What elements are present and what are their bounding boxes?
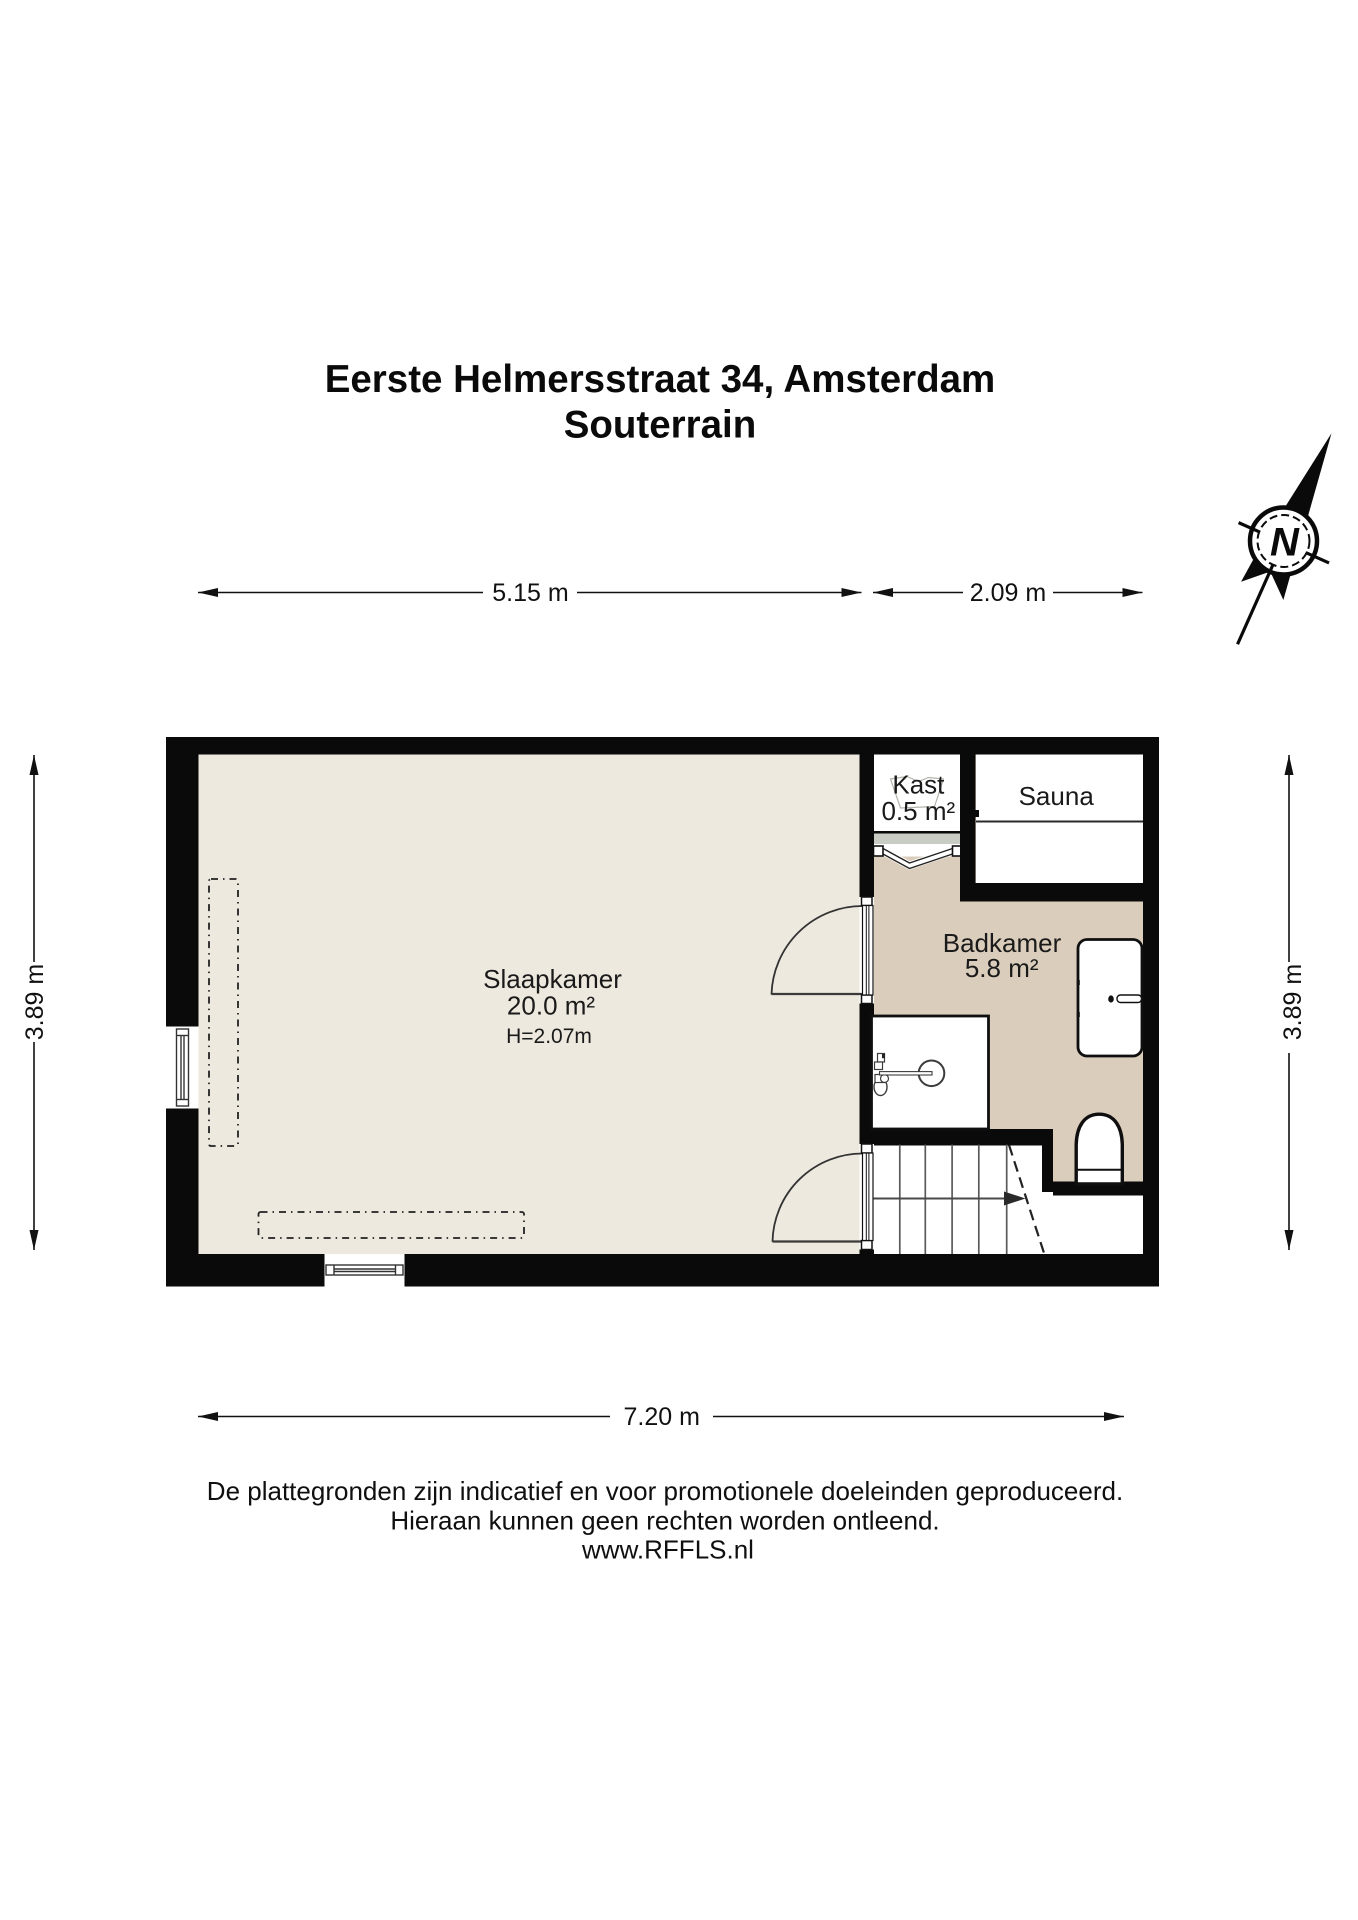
svg-text:5.8 m²: 5.8 m²: [965, 953, 1039, 983]
svg-text:H=2.07m: H=2.07m: [506, 1025, 592, 1048]
svg-text:7.20 m: 7.20 m: [623, 1403, 699, 1431]
svg-text:De plattegronden zijn indicati: De plattegronden zijn indicatief en voor…: [207, 1476, 1123, 1506]
svg-text:Souterrain: Souterrain: [564, 404, 757, 447]
svg-text:N: N: [1270, 521, 1300, 565]
svg-text:3.89 m: 3.89 m: [21, 964, 49, 1040]
svg-text:Sauna: Sauna: [1019, 781, 1095, 811]
svg-text:www.RFFLS.nl: www.RFFLS.nl: [581, 1534, 754, 1564]
svg-text:Eerste Helmersstraat 34, Amste: Eerste Helmersstraat 34, Amsterdam: [325, 358, 996, 401]
svg-text:0.5 m²: 0.5 m²: [881, 796, 955, 826]
svg-text:Hieraan kunnen geen rechten wo: Hieraan kunnen geen rechten worden ontle…: [390, 1505, 939, 1535]
svg-text:3.89 m: 3.89 m: [1279, 964, 1307, 1040]
svg-text:20.0 m²: 20.0 m²: [507, 990, 595, 1020]
svg-text:2.09 m: 2.09 m: [970, 579, 1046, 607]
svg-text:5.15 m: 5.15 m: [492, 579, 568, 607]
